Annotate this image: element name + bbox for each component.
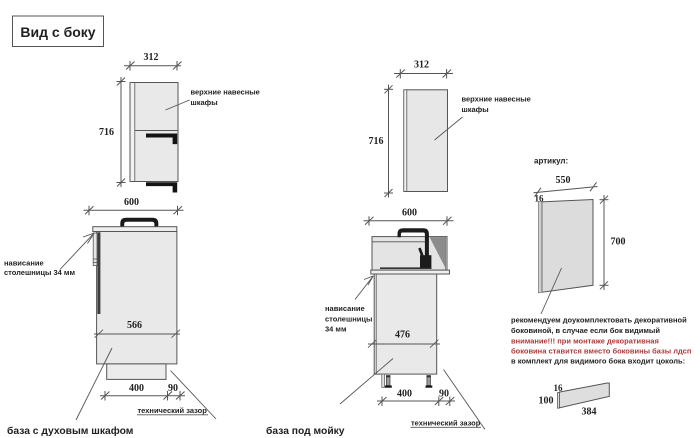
svg-text:700: 700 xyxy=(611,237,626,248)
svg-text:550: 550 xyxy=(556,175,571,186)
svg-text:716: 716 xyxy=(99,127,114,138)
svg-text:боковиной, в случае если бок в: боковиной, в случае если бок видимый xyxy=(511,326,660,335)
svg-text:верхние навесные: верхние навесные xyxy=(462,95,531,104)
svg-text:Вид с боку: Вид с боку xyxy=(20,24,95,40)
svg-text:шкафы: шкафы xyxy=(462,105,489,114)
svg-text:16: 16 xyxy=(554,383,564,393)
svg-text:технический зазор: технический зазор xyxy=(138,406,208,415)
svg-text:476: 476 xyxy=(395,330,410,341)
svg-text:566: 566 xyxy=(127,320,142,331)
svg-text:шкафы: шкафы xyxy=(191,98,218,107)
svg-text:90: 90 xyxy=(168,383,178,394)
svg-text:внимание!!! при монтаже декора: внимание!!! при монтаже декоративная xyxy=(511,337,659,346)
svg-text:34 мм: 34 мм xyxy=(325,325,347,334)
svg-text:технический зазор: технический зазор xyxy=(411,419,481,428)
svg-text:312: 312 xyxy=(144,52,159,63)
svg-text:100: 100 xyxy=(539,396,554,407)
svg-text:нависание: нависание xyxy=(4,259,44,268)
svg-text:400: 400 xyxy=(397,389,412,400)
svg-text:база с духовым шкафом: база с духовым шкафом xyxy=(7,425,133,437)
svg-text:столешницы 34 мм: столешницы 34 мм xyxy=(4,268,75,277)
svg-text:в комплект для видимого бока в: в комплект для видимого бока входит цоко… xyxy=(511,357,685,366)
svg-text:600: 600 xyxy=(124,197,139,208)
svg-text:артикул:: артикул: xyxy=(534,157,568,166)
svg-text:312: 312 xyxy=(414,60,429,71)
svg-text:384: 384 xyxy=(582,407,597,418)
svg-text:база под мойку: база под мойку xyxy=(266,425,345,437)
svg-text:400: 400 xyxy=(129,383,144,394)
svg-text:нависание: нависание xyxy=(325,304,365,313)
svg-text:600: 600 xyxy=(402,208,417,219)
svg-text:716: 716 xyxy=(369,136,384,147)
svg-text:боковина ставится вместо боков: боковина ставится вместо боковины базы л… xyxy=(511,347,691,356)
svg-text:верхние навесные: верхние навесные xyxy=(191,88,260,97)
svg-text:90: 90 xyxy=(439,389,449,400)
svg-text:рекомендуем доукомплектовать д: рекомендуем доукомплектовать декоративно… xyxy=(511,316,687,325)
svg-text:столешницы: столешницы xyxy=(325,315,372,324)
